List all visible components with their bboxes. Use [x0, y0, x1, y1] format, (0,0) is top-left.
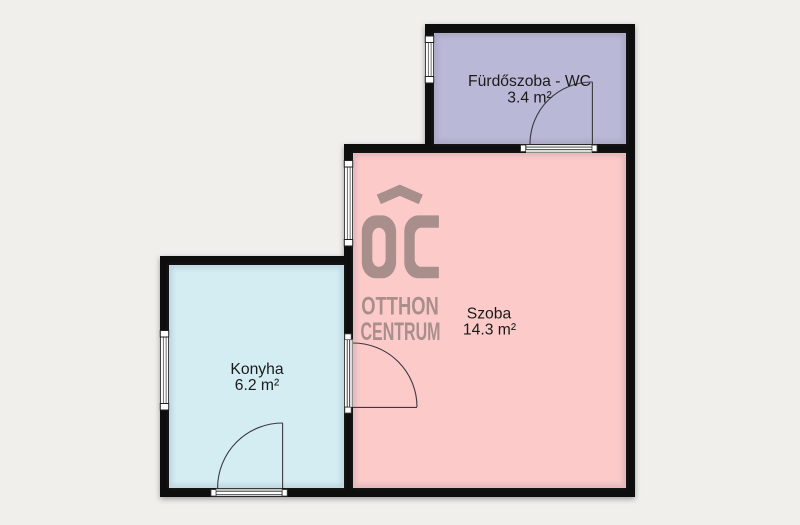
svg-text:Szoba: Szoba: [467, 305, 512, 322]
svg-text:Konyha: Konyha: [230, 361, 283, 378]
svg-text:OTTHON: OTTHON: [361, 293, 439, 321]
svg-text:14.3 m²: 14.3 m²: [463, 321, 516, 338]
svg-text:3.4 m²: 3.4 m²: [507, 89, 551, 106]
svg-text:CENTRUM: CENTRUM: [361, 318, 441, 346]
svg-text:Fürdőszoba - WC: Fürdőszoba - WC: [468, 73, 591, 90]
svg-text:6.2 m²: 6.2 m²: [235, 377, 279, 394]
